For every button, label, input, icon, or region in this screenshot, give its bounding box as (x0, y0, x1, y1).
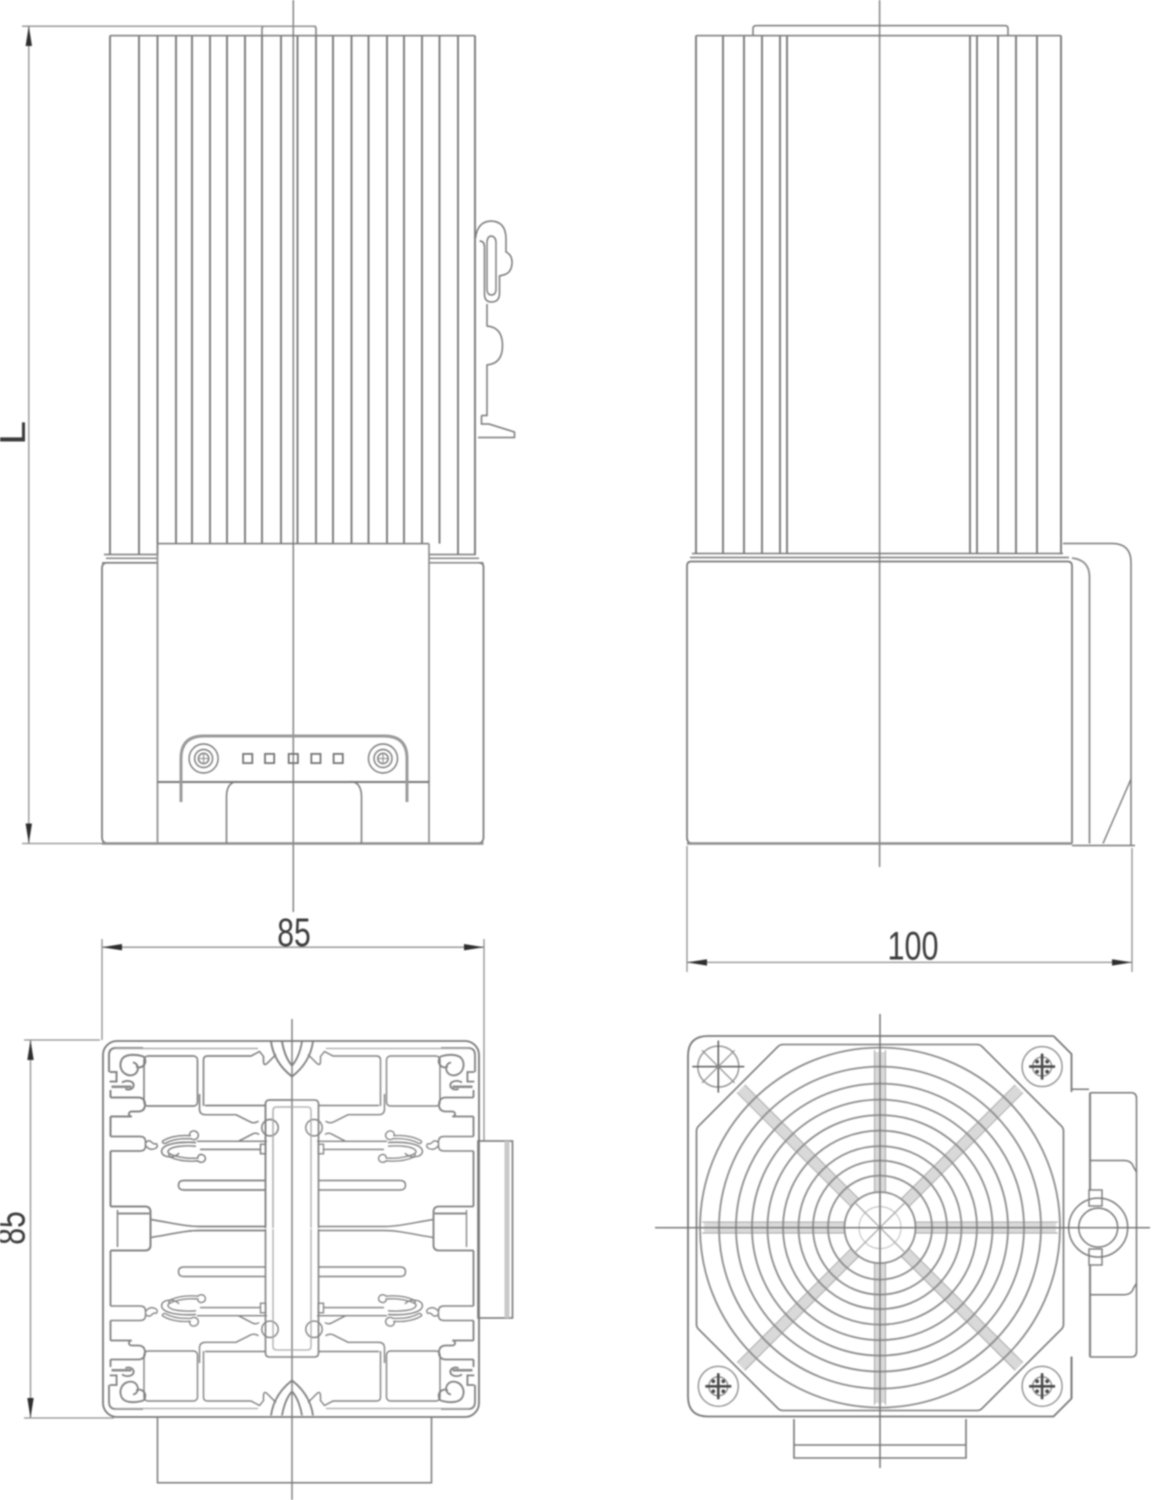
svg-text:85: 85 (0, 1211, 34, 1245)
svg-text:85: 85 (277, 911, 311, 955)
svg-text:100: 100 (888, 925, 939, 969)
svg-text:L: L (0, 421, 34, 445)
